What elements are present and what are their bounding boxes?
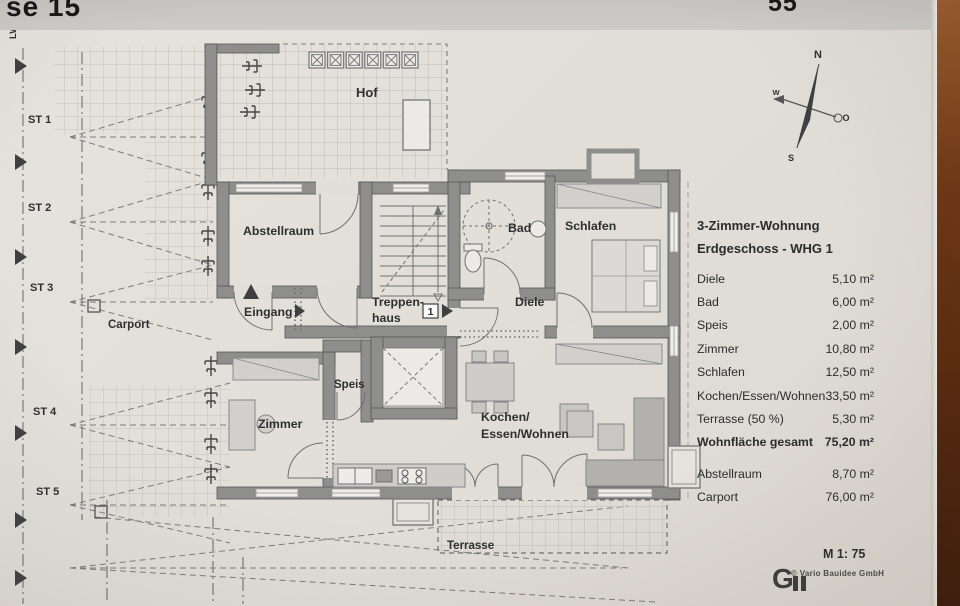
boundary-arrow-icon	[15, 58, 27, 586]
parking-spot-label: ST 1	[28, 114, 51, 126]
compass-east-label: O	[842, 113, 849, 123]
legend-row: Zimmer10,80 m²	[697, 337, 874, 360]
bed-symbol	[592, 240, 660, 312]
room-label-kochen: Essen/Wohnen	[481, 427, 569, 441]
coffee-table-symbol	[560, 404, 624, 450]
parking-spot-label: ST 5	[36, 486, 59, 498]
room-label-bad: Bad	[508, 221, 531, 235]
stairwell-shaft	[383, 348, 443, 406]
wood-table-background	[937, 0, 960, 606]
room-label-carport: Carport	[108, 319, 150, 331]
stairs-symbol	[380, 205, 446, 301]
copyright-credit: © Vario Bauidee GmbH	[791, 569, 884, 578]
exterior-bumpout	[589, 151, 637, 181]
parking-spot-label: ST 3	[30, 282, 53, 294]
room-label-zimmer: Zimmer	[258, 417, 303, 431]
cropped-header-text-right: 55	[768, 0, 798, 18]
legend-row: Abstellraum8,70 m²	[697, 462, 874, 485]
area-legend: 3-Zimmer-Wohnung Erdgeschoss - WHG 1 Die…	[697, 218, 874, 509]
dining-table-symbol	[466, 351, 514, 413]
legend-row: Speis2,00 m²	[697, 314, 874, 337]
legend-row: Carport76,00 m²	[697, 486, 874, 509]
legend-row: Kochen/Essen/Wohnen33,50 m²	[697, 384, 874, 407]
legend-row: Terrasse (50 %)5,30 m²	[697, 407, 874, 430]
cropped-header-text-left: se 15	[6, 0, 81, 23]
photographed-floor-plan-page: 1 N S W O Hof Abstellraum Eingang Treppe…	[0, 0, 960, 606]
room-label-terrasse: Terrasse	[447, 540, 494, 552]
parking-spot-label: ST 2	[28, 202, 51, 214]
compass-north-label: N	[814, 49, 822, 61]
room-label-schlafen: Schlafen	[565, 219, 616, 233]
page-header-strip: se 15 55	[0, 0, 937, 30]
compass-west-label: W	[772, 88, 780, 97]
room-label-hof: Hof	[356, 85, 378, 100]
parking-spot-label: ST 4	[33, 406, 57, 418]
heat-pump-box	[403, 100, 430, 150]
room-label-abstellraum: Abstellraum	[243, 224, 314, 238]
room-label-speis: Speis	[334, 379, 365, 391]
legend-row: Schlafen12,50 m²	[697, 361, 874, 384]
room-label-kochen: Kochen/	[481, 410, 530, 424]
legend-row: Bad6,00 m²	[697, 290, 874, 313]
scale-label: M 1: 75	[823, 547, 865, 561]
room-label-diele: Diele	[515, 295, 545, 309]
room-label-eingang: Eingang	[244, 305, 293, 319]
legend-row-total: Wohnfläche gesamt75,20 m²	[697, 431, 874, 454]
sink-symbol	[530, 221, 546, 237]
legend-subtitle: Erdgeschoss - WHG 1	[697, 241, 874, 257]
room-label-treppenhaus: Treppen-	[372, 295, 424, 309]
compass-south-label: S	[788, 153, 794, 163]
compass-rose-icon: N S W O	[772, 49, 849, 163]
legend-title: 3-Zimmer-Wohnung	[697, 218, 874, 234]
hof-courtyard	[219, 44, 447, 178]
unit-marker-number: 1	[428, 306, 434, 318]
kitchen-counter-symbol	[333, 464, 465, 487]
room-label-treppenhaus: haus	[372, 311, 401, 325]
legend-row: Diele5,10 m²	[697, 267, 874, 290]
toilet-symbol	[464, 244, 482, 272]
